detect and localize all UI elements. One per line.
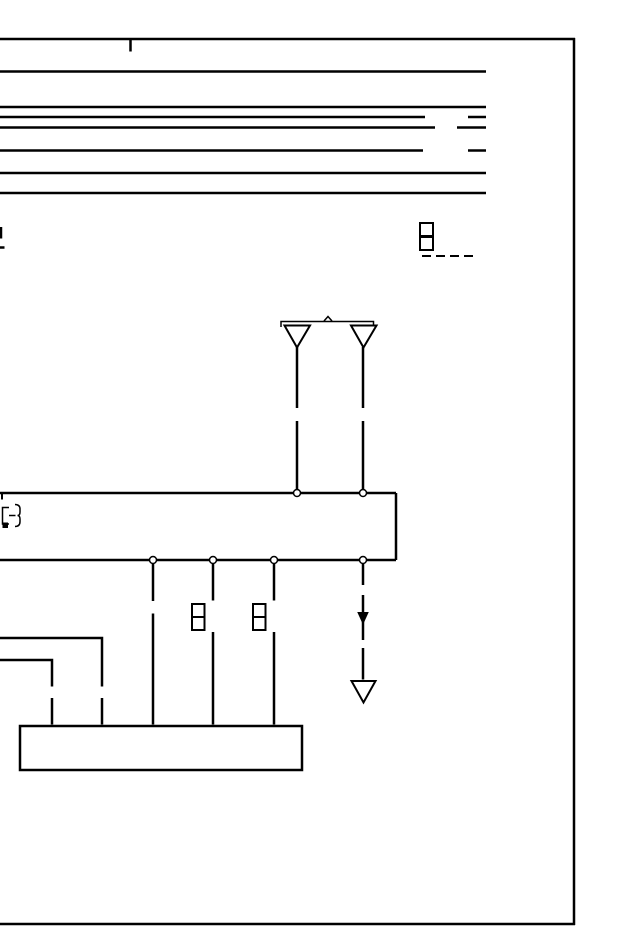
component-glyph-contact	[3, 523, 9, 529]
component-glyph-brace	[15, 505, 20, 527]
lower-unit-box	[20, 726, 302, 770]
antenna-terminal-right	[360, 490, 367, 497]
antenna-symbol-left	[285, 326, 311, 348]
component-glyph-body	[3, 508, 10, 525]
branch-wire-b	[0, 660, 52, 687]
antenna-symbol-right	[351, 326, 377, 348]
antenna-bracket-caret	[324, 317, 332, 322]
schematic-page	[0, 0, 640, 950]
connector-c-pin-1	[253, 604, 266, 617]
connector-a-pin-2	[420, 237, 433, 250]
connector-b-pin-1	[192, 604, 205, 617]
output-terminal-3	[271, 557, 278, 564]
output-terminal-2	[210, 557, 217, 564]
antenna-terminal-left	[294, 490, 301, 497]
connector-c-pin-2	[253, 617, 266, 630]
output-terminal-1	[150, 557, 157, 564]
wiring-diagram	[0, 0, 640, 950]
ground-wire-arrowhead	[358, 613, 368, 624]
ground-symbol	[352, 681, 376, 703]
output-terminal-4	[360, 557, 367, 564]
connector-b-pin-2	[192, 617, 205, 630]
connector-a-pin-1	[420, 223, 433, 236]
